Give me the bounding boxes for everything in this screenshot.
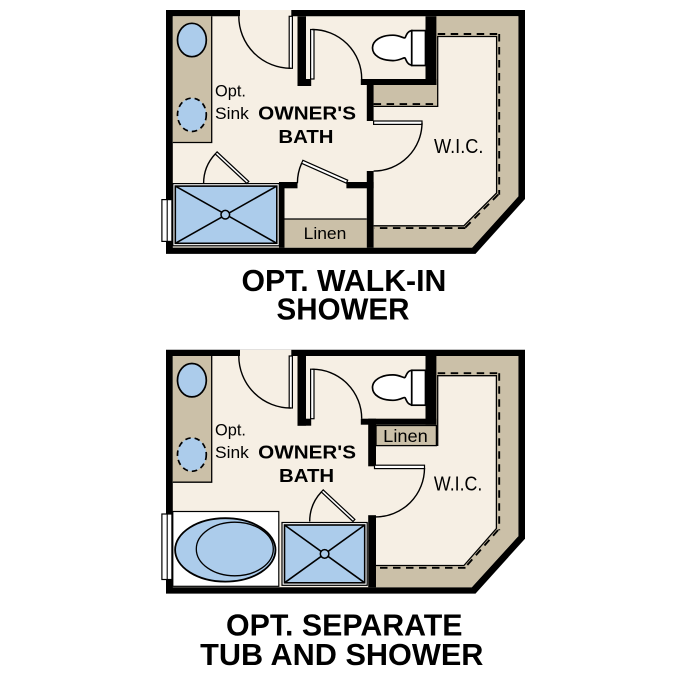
svg-text:OWNER'S: OWNER'S (258, 102, 356, 123)
svg-text:TUB AND SHOWER: TUB AND SHOWER (200, 638, 483, 672)
svg-text:OWNER'S: OWNER'S (258, 441, 356, 462)
svg-text:Sink: Sink (215, 443, 249, 462)
svg-text:W.I.C.: W.I.C. (434, 136, 483, 158)
svg-text:SHOWER: SHOWER (277, 293, 410, 327)
svg-text:BATH: BATH (278, 126, 333, 147)
svg-text:Opt.: Opt. (215, 81, 246, 100)
svg-text:W.I.C.: W.I.C. (434, 473, 482, 495)
svg-text:Opt.: Opt. (215, 421, 246, 440)
svg-text:Linen: Linen (383, 426, 428, 446)
svg-text:BATH: BATH (279, 465, 334, 486)
svg-text:Linen: Linen (304, 224, 347, 243)
svg-text:Sink: Sink (215, 104, 249, 123)
